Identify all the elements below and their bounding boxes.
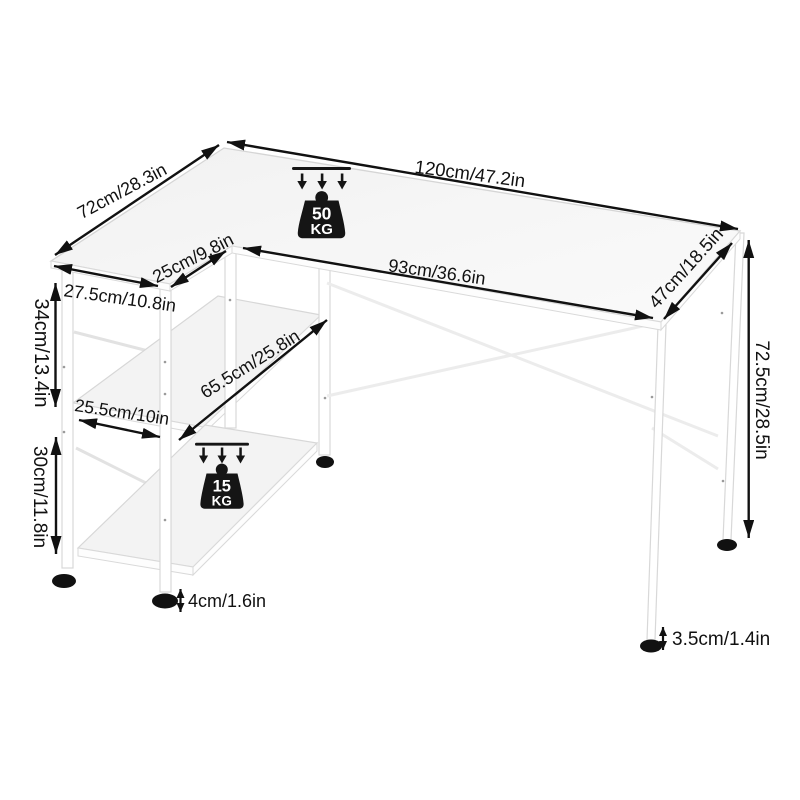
svg-text:4cm/1.6in: 4cm/1.6in <box>188 591 266 611</box>
svg-text:KG: KG <box>212 494 232 509</box>
svg-text:30cm/11.8in: 30cm/11.8in <box>29 446 50 548</box>
svg-text:72.5cm/28.5in: 72.5cm/28.5in <box>751 340 772 459</box>
svg-text:KG: KG <box>310 221 333 238</box>
svg-text:34cm/13.4in: 34cm/13.4in <box>30 299 52 408</box>
svg-text:3.5cm/1.4in: 3.5cm/1.4in <box>672 629 770 650</box>
